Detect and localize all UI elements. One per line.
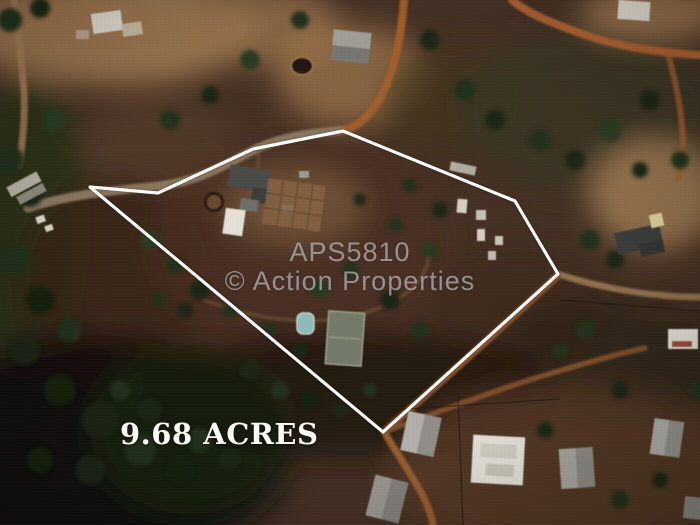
pond [291, 57, 313, 75]
building-gable [365, 475, 408, 524]
garden-plots [262, 178, 326, 232]
aerial-photo: APS5810 © Action Properties 9.68 ACRES [0, 0, 700, 525]
building [649, 213, 664, 228]
watermark: APS5810 © Action Properties [0, 238, 700, 296]
building [617, 0, 650, 21]
area-label: 9.68 ACRES [120, 417, 318, 451]
building [76, 30, 89, 39]
barn-roof [331, 29, 372, 64]
building [299, 171, 309, 178]
building-white-red [668, 329, 698, 349]
swimming-pool [297, 313, 314, 334]
building-gable [559, 447, 596, 489]
construction-slab [471, 435, 525, 486]
building [683, 496, 700, 520]
kraal-ring [206, 194, 223, 211]
building-gable [650, 418, 685, 458]
watermark-owner: © Action Properties [0, 267, 700, 296]
tennis-court [325, 311, 365, 366]
watermark-code: APS5810 [0, 238, 700, 267]
white-shed [222, 208, 245, 237]
